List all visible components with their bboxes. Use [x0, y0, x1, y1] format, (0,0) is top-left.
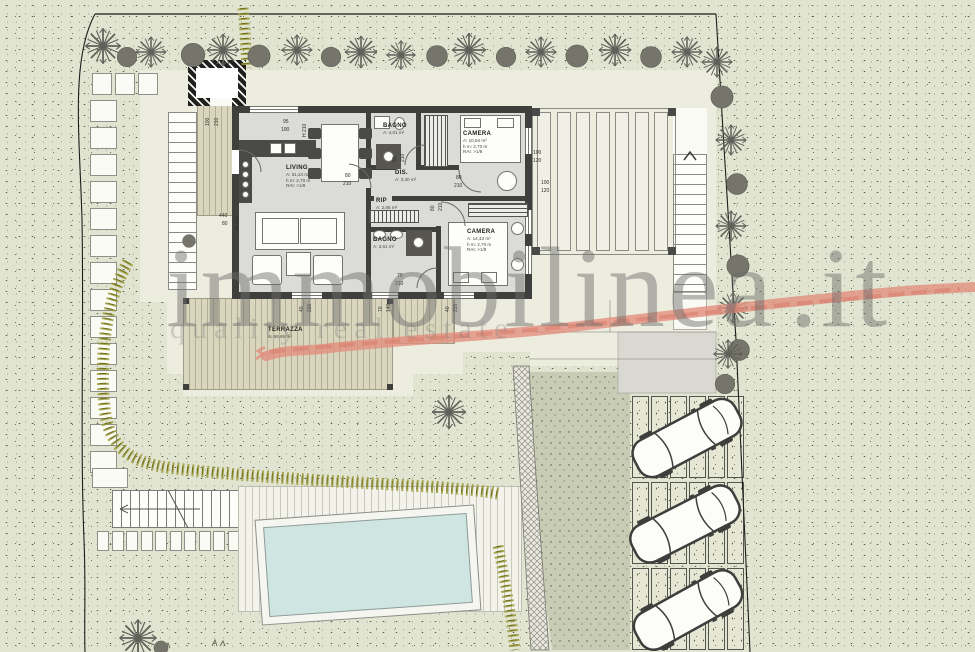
- site-plan-canvas: LIVINGA: 31,24 m²h m: 2,70 mRAI: >1/8BAG…: [0, 0, 975, 652]
- watermark-swoosh: [0, 0, 975, 652]
